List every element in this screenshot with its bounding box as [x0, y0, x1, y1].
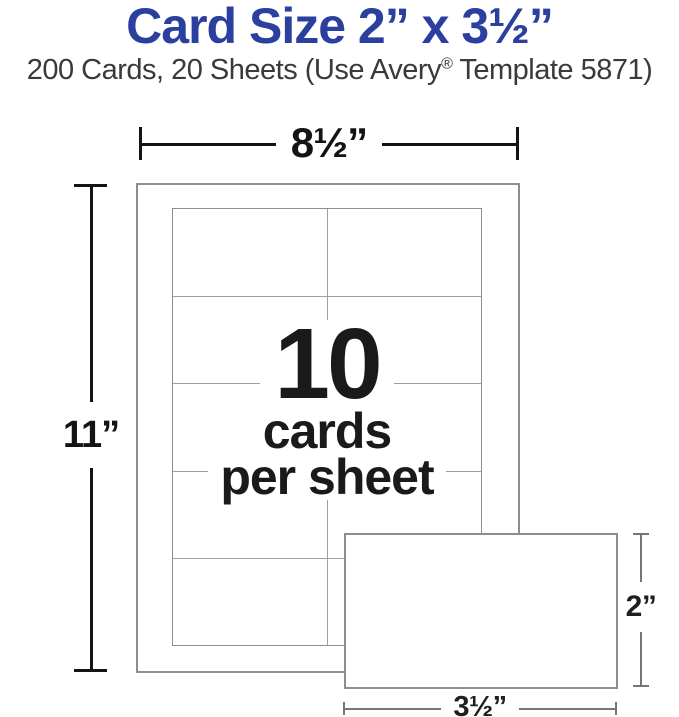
caption-per-sheet: per sheet	[208, 454, 445, 500]
card-height-label-wrap: 2”	[610, 582, 672, 632]
business-card	[344, 533, 618, 689]
registered-trademark-symbol: ®	[441, 55, 452, 72]
card-height-label: 2”	[623, 582, 660, 632]
page-title: Card Size 2” x 3½”	[0, 0, 679, 52]
subtitle-text-pre: 200 Cards, 20 Sheets (Use Avery	[27, 54, 441, 86]
card-count: 10	[260, 320, 393, 408]
sheet-width-label: 8½”	[276, 118, 382, 168]
subtitle-text-post: Template 5871)	[452, 54, 652, 86]
sheet-height-label: 11”	[61, 402, 121, 468]
sheet-width-label-wrap: 8½”	[140, 118, 518, 168]
subtitle: 200 Cards, 20 Sheets (Use Avery® Templat…	[0, 53, 679, 87]
product-diagram: Card Size 2” x 3½” 200 Cards, 20 Sheets …	[0, 0, 679, 717]
caption-line-2: per sheet	[208, 454, 445, 500]
card-count-line: 10	[260, 320, 393, 408]
caption-cards: cards	[251, 408, 403, 454]
sheet-height-top-tick	[74, 184, 107, 187]
card-height-bottom-tick	[633, 685, 649, 687]
card-width-label: 3½”	[441, 692, 518, 717]
card-height-top-tick	[633, 533, 649, 535]
sheet-height-label-wrap: 11”	[56, 402, 126, 468]
caption-line-1: cards	[251, 408, 403, 454]
card-width-label-wrap: 3½”	[343, 692, 617, 717]
sheet-height-bottom-tick	[74, 669, 107, 672]
cards-per-sheet-caption: 10 cards per sheet	[172, 320, 482, 500]
